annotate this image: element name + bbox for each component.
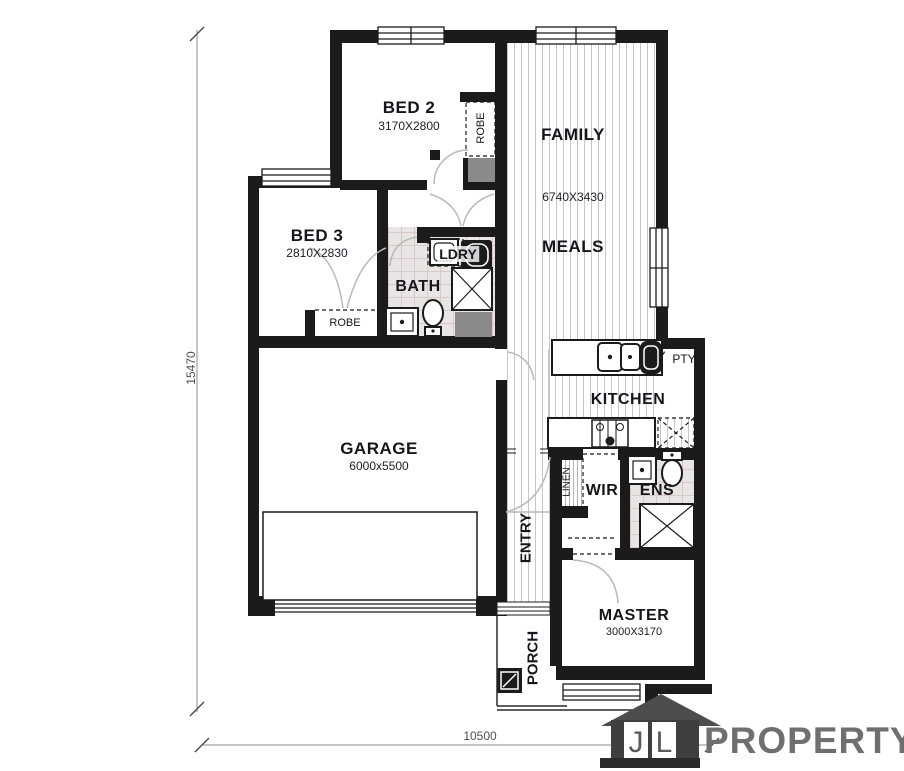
- bench-stub: [548, 418, 556, 448]
- room-dims-garage: 6000x5500: [349, 459, 408, 473]
- room-label-meals: MEALS: [542, 237, 604, 257]
- room-label-ldry: LDRY: [437, 246, 479, 262]
- room-dims-bed3: 2810X2830: [286, 246, 347, 260]
- room-label-entry: ENTRY: [518, 513, 535, 563]
- ens-floor: [630, 460, 694, 548]
- logo-wordmark: PROPERTY: [704, 720, 904, 762]
- room-label-bath: BATH: [395, 278, 440, 296]
- wall-bed2-west: [330, 30, 342, 188]
- wall-bed3-east: [377, 188, 388, 336]
- wall-east: [694, 338, 705, 680]
- room-label-bed2: BED 2: [383, 98, 436, 118]
- robe2-north: [460, 92, 495, 102]
- window-master: [563, 684, 640, 700]
- ldry-pier: [417, 227, 430, 243]
- room-label-garage: GARAGE: [340, 439, 418, 459]
- room-label-linen: LINEN: [562, 467, 573, 496]
- wall-bath-north: [430, 227, 507, 237]
- wall-master-north-b: [615, 548, 705, 560]
- wall-wir-ens: [620, 460, 630, 548]
- room-label-wir: WIR: [586, 482, 619, 500]
- room-dims-bed2: 3170X2800: [378, 119, 439, 133]
- logo-letter-j: J: [629, 726, 644, 759]
- robe2-niche: [468, 158, 495, 182]
- room-label-porch: PORCH: [525, 631, 542, 685]
- robe-label-bed2: ROBE: [475, 112, 487, 143]
- room-label-ens: ENS: [640, 482, 674, 500]
- room-label-bed3: BED 3: [291, 226, 344, 246]
- bath-niche: [455, 312, 492, 337]
- dimension-depth: 15470: [184, 351, 198, 384]
- dimension-width: 10500: [463, 729, 496, 743]
- garage-door: [263, 512, 477, 612]
- wall-entry-east: [550, 448, 562, 666]
- room-label-master: MASTER: [599, 607, 670, 625]
- floor-plan: J L BED 2 3170X2800 FAMILY 6740X3430 MEA…: [0, 0, 904, 771]
- wall-garage-north: [248, 336, 507, 348]
- wall-family-east: [656, 30, 668, 349]
- wall-kitchen-south-b: [618, 448, 705, 460]
- entry-floor: [507, 349, 550, 602]
- robe3-pier: [305, 310, 315, 336]
- wall-linen-south: [562, 506, 588, 518]
- room-dims-master: 3000X3170: [606, 626, 662, 638]
- wall-bed3-north: [248, 176, 342, 188]
- wall-garage-east: [496, 380, 507, 616]
- logo-house-icon: [600, 684, 721, 768]
- garage-pier-left: [248, 596, 275, 616]
- wall-west: [248, 176, 259, 616]
- room-label-pty: PTY: [672, 352, 695, 366]
- logo-letter-l: L: [656, 726, 673, 759]
- wall-master-south: [556, 666, 705, 680]
- room-label-kitchen: KITCHEN: [591, 391, 666, 409]
- robe-label-bed3: ROBE: [327, 317, 362, 329]
- bed2-door-pier: [430, 150, 440, 160]
- room-dims-family: 6740X3430: [542, 190, 603, 204]
- porch-post: [497, 668, 522, 693]
- wall-master-north-a: [562, 548, 573, 560]
- room-label-family: FAMILY: [541, 125, 605, 145]
